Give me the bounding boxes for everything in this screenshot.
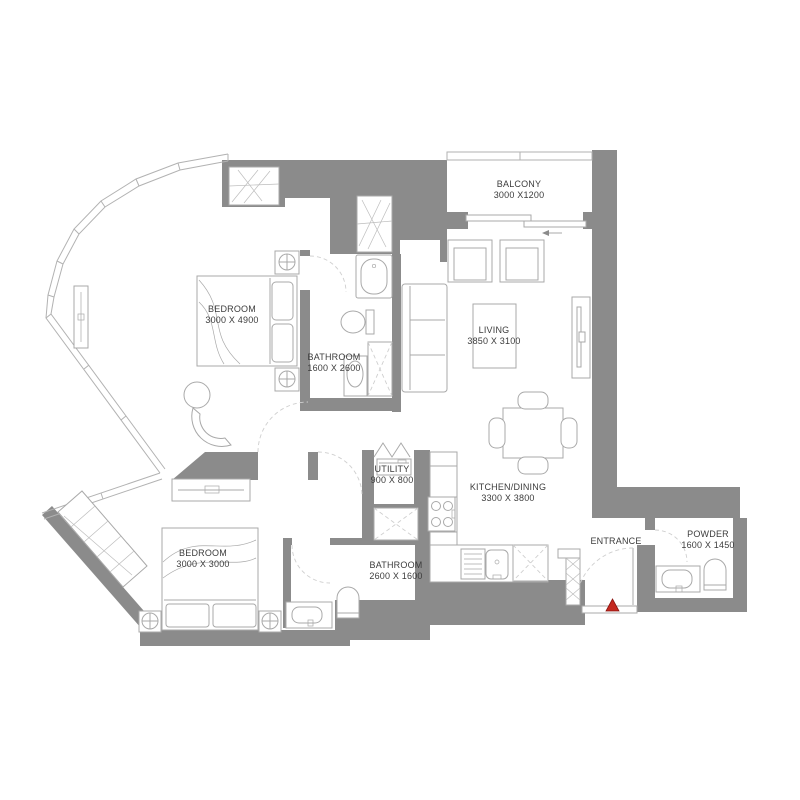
tv-unit xyxy=(572,297,590,378)
powder-toilet xyxy=(704,559,726,590)
washing-machine xyxy=(377,459,411,475)
bathroom2-door-arc xyxy=(292,545,330,583)
desk-curved xyxy=(192,408,231,446)
balcony-window xyxy=(447,152,592,160)
nightstand-lamp-1a xyxy=(275,251,299,274)
floor-plan-drawing xyxy=(0,0,800,800)
nightstand-lamp-1b xyxy=(275,368,299,391)
toilet-2 xyxy=(337,587,359,618)
sofa xyxy=(402,284,447,392)
wardrobe-top xyxy=(229,167,279,205)
wardrobe-bedroom2 xyxy=(172,479,250,501)
sink-vanity-2 xyxy=(286,602,332,628)
stool xyxy=(184,382,210,408)
duct-shaft-kitchen xyxy=(513,545,548,581)
shower-shaft xyxy=(368,342,392,396)
walls xyxy=(42,150,747,646)
powder-sink xyxy=(656,566,700,592)
nightstand-lamp-2b xyxy=(259,611,281,632)
stove xyxy=(428,497,455,531)
toilet-1 xyxy=(341,310,374,334)
bed-1 xyxy=(197,276,297,366)
armchair-2 xyxy=(500,240,544,282)
sink-vanity-1 xyxy=(344,356,367,396)
floor-plan-page: BALCONY3000 X1200 BEDROOM3000 X 4900 BAT… xyxy=(0,0,800,800)
armchair-1 xyxy=(448,240,492,282)
entrance-door xyxy=(576,548,637,613)
coffee-table xyxy=(473,304,516,368)
hall-door-arc xyxy=(318,452,362,496)
sliding-door xyxy=(466,215,586,236)
dresser xyxy=(74,286,88,348)
kitchen-sink xyxy=(461,549,508,579)
wardrobe-corridor xyxy=(357,196,392,252)
powder-door-arc xyxy=(655,530,687,562)
utility-folding-door xyxy=(374,443,410,457)
bed-2 xyxy=(162,528,258,630)
bathroom1-door-arc xyxy=(310,256,346,292)
slide-arrow-icon xyxy=(542,230,549,236)
nightstand-lamp-2a xyxy=(139,611,161,632)
duct-shaft-utility xyxy=(374,508,418,540)
entry-marker xyxy=(606,599,619,611)
bathtub xyxy=(356,255,392,298)
dining-table xyxy=(503,408,563,458)
